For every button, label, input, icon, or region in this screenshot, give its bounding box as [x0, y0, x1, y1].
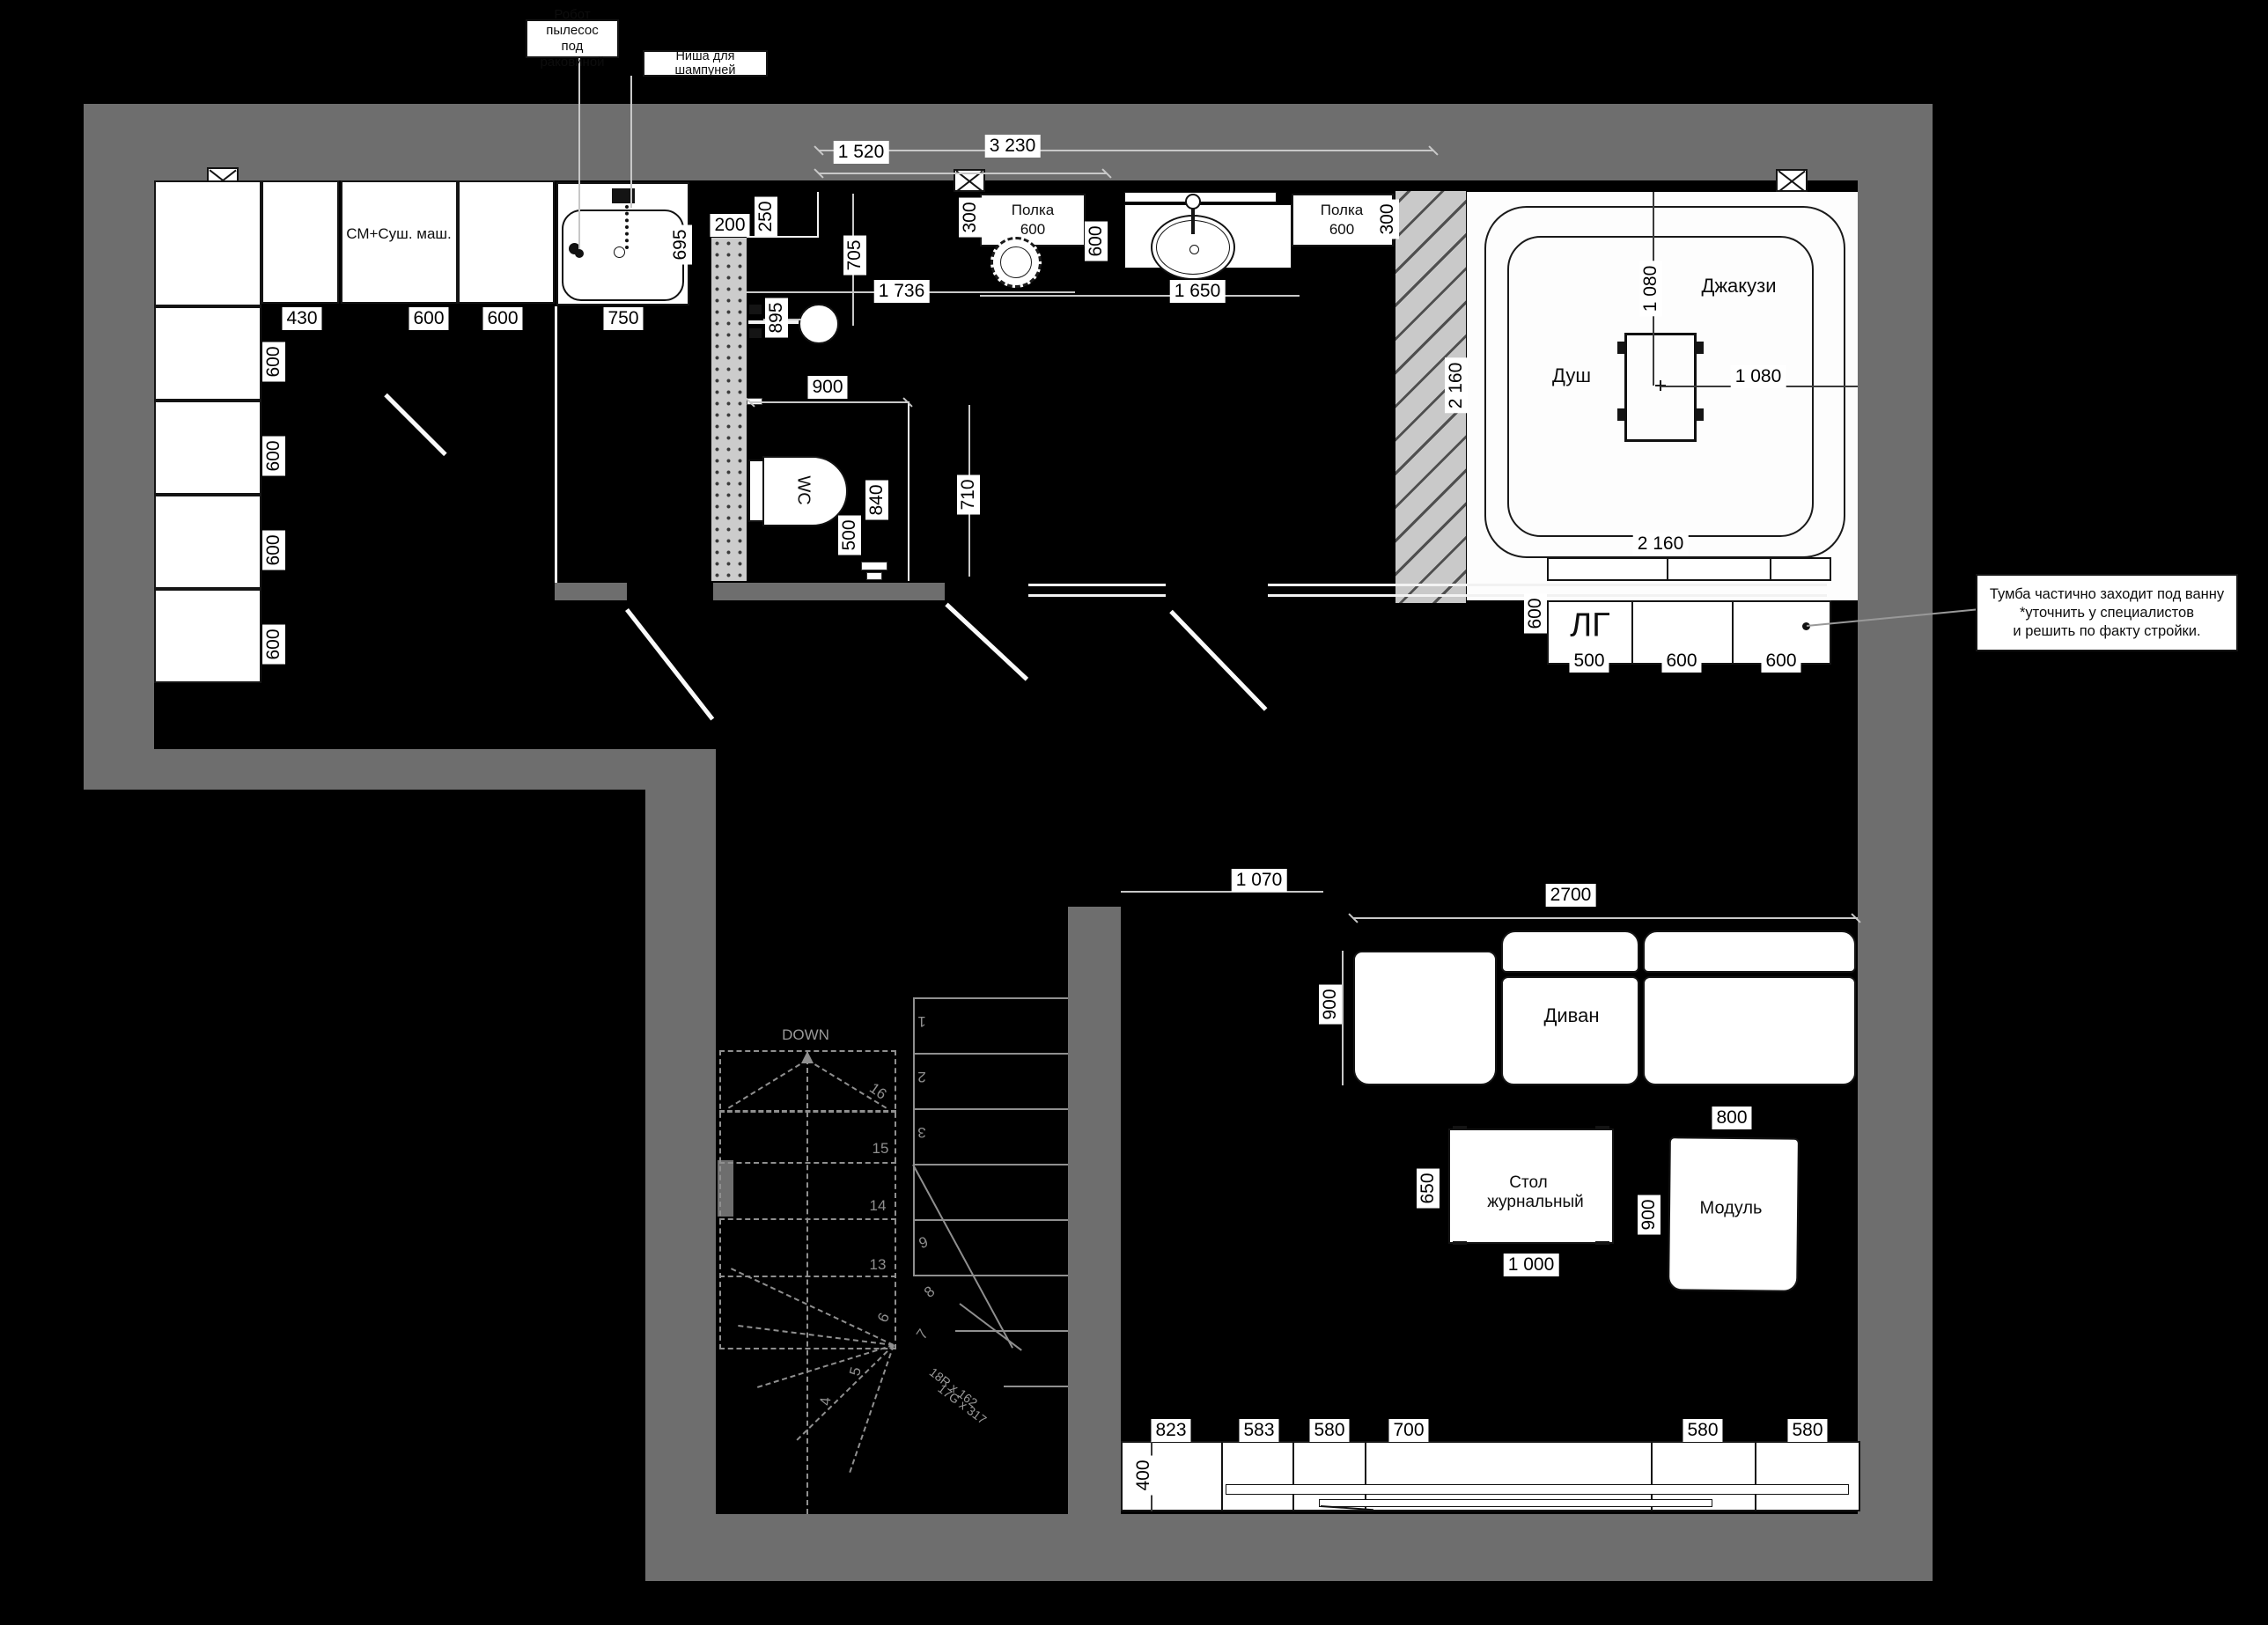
lg-cabinet-label: ЛГ — [1570, 607, 1610, 645]
dim-label: 900 — [1319, 984, 1342, 1024]
shelf-left-label-line1: Полка — [1012, 202, 1055, 219]
dim-label: 600 — [1661, 650, 1701, 673]
dim-label: 705 — [843, 235, 866, 275]
dim-label: 3 230 — [985, 135, 1041, 158]
dim-label: 600 — [482, 307, 522, 330]
stair-number: 15 — [873, 1140, 889, 1158]
dim-label: 600 — [1761, 650, 1800, 673]
stair-number: 7 — [913, 1326, 932, 1342]
module-label: Модуль — [1700, 1199, 1763, 1219]
dim-label: 600 — [262, 624, 285, 664]
stair-number: 13 — [870, 1256, 887, 1274]
wc-label: WC — [793, 475, 814, 504]
dim-label: 1 000 — [1504, 1254, 1559, 1276]
dim-label: 583 — [1239, 1419, 1278, 1442]
stair-number: 4 — [817, 1396, 836, 1406]
dim-label: 1 736 — [874, 280, 930, 303]
dim-label: 700 — [1388, 1419, 1428, 1442]
dim-label: 2 160 — [1445, 358, 1468, 414]
dim-label: 600 — [262, 342, 285, 381]
stair-number: 5 — [846, 1365, 865, 1378]
stair-number: 8 — [921, 1283, 939, 1301]
dim-label: 250 — [755, 196, 777, 236]
stair-number: 9 — [917, 1233, 931, 1253]
dim-label: 600 — [262, 530, 285, 570]
dim-label: 2 160 — [1633, 533, 1689, 555]
floor-plan: Робот пылесос под раковиной Ниша для шам… — [0, 0, 2268, 1625]
dim-label: 600 — [1085, 221, 1108, 261]
stair-number: 3 — [917, 1123, 925, 1141]
dim-label: 840 — [865, 480, 888, 519]
dim-label: 500 — [838, 515, 861, 555]
dim-label: 710 — [957, 474, 980, 514]
dim-label: 400 — [1132, 1455, 1155, 1495]
dim-label: 900 — [807, 376, 847, 399]
dim-label: 300 — [1376, 199, 1399, 239]
dim-label: 895 — [765, 298, 788, 337]
dim-label: 695 — [669, 224, 692, 264]
dim-label: 823 — [1151, 1419, 1190, 1442]
dim-label: 650 — [1417, 1168, 1440, 1208]
stair-number: 6 — [874, 1310, 894, 1325]
dim-label: 1 070 — [1232, 869, 1287, 892]
dim-label: 600 — [1524, 593, 1547, 633]
dim-label: 1 520 — [834, 141, 889, 164]
dim-label: 1 080 — [1639, 261, 1662, 317]
labels-layer: 3 2301 5202002507051 7368959008405007103… — [0, 0, 2268, 1625]
sofa-label: Диван — [1543, 1004, 1599, 1027]
dim-label: 300 — [959, 197, 982, 237]
dim-label: 430 — [282, 307, 321, 330]
shelf-left-label-line2: 600 — [1020, 221, 1045, 239]
dim-label: 500 — [1569, 650, 1609, 673]
dim-label: 1 650 — [1170, 280, 1226, 303]
stair-number: 1 — [917, 1012, 925, 1030]
coffee-table-label-line2: журнальный — [1487, 1193, 1584, 1212]
dim-label: 800 — [1712, 1107, 1751, 1129]
shower-label: Душ — [1552, 364, 1591, 387]
dim-label: 1 080 — [1731, 365, 1786, 388]
dim-label: 750 — [603, 307, 643, 330]
stair-number: 14 — [870, 1197, 887, 1215]
stair-number: 2 — [917, 1068, 925, 1085]
stair-number: 16 — [866, 1079, 890, 1103]
dim-label: 200 — [710, 214, 749, 237]
dim-label: 900 — [1638, 1195, 1660, 1234]
dim-label: 580 — [1309, 1419, 1349, 1442]
dim-label: 2700 — [1546, 884, 1596, 907]
stairs-down-label: DOWN — [782, 1026, 829, 1044]
shelf-right-label-line1: Полка — [1321, 202, 1364, 219]
jacuzzi-label: Джакузи — [1701, 275, 1776, 298]
dim-label: 600 — [409, 307, 448, 330]
washer-dryer-label: СМ+Суш. маш. — [346, 225, 452, 243]
dim-label: 580 — [1683, 1419, 1722, 1442]
shelf-right-label-line2: 600 — [1329, 221, 1354, 239]
coffee-table-label-line1: Стол — [1509, 1173, 1547, 1193]
dim-label: 580 — [1787, 1419, 1827, 1442]
dim-label: 600 — [262, 436, 285, 475]
